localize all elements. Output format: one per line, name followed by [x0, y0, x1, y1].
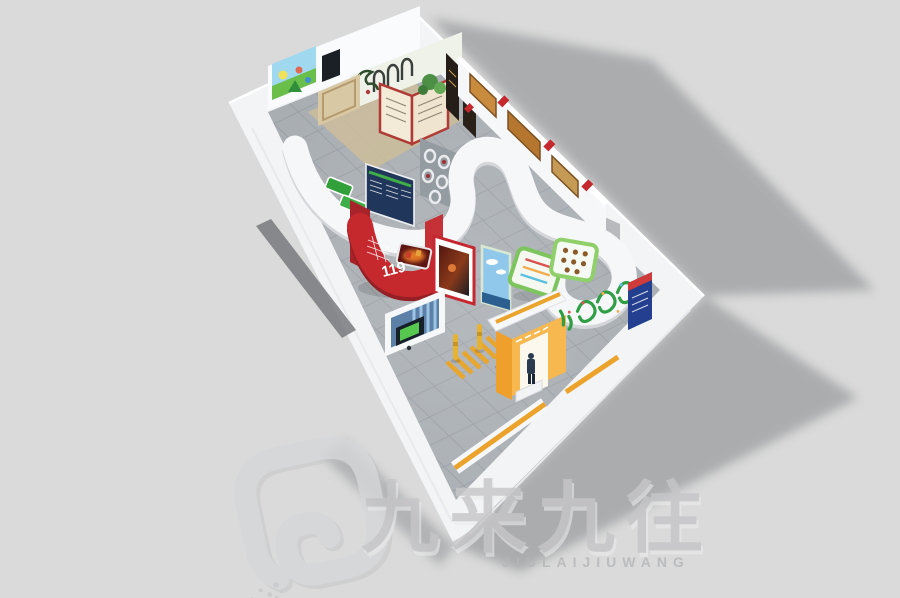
watermark-en-text: JIULAIJIUWANG	[502, 554, 690, 570]
blue-sky-poster	[482, 246, 510, 310]
green-exhibit-board-wall	[550, 239, 598, 282]
render-canvas: 119	[0, 0, 900, 598]
watermark-cn-text: 九来九往	[361, 474, 713, 562]
exhibition-hall-render: 119	[0, 0, 900, 598]
